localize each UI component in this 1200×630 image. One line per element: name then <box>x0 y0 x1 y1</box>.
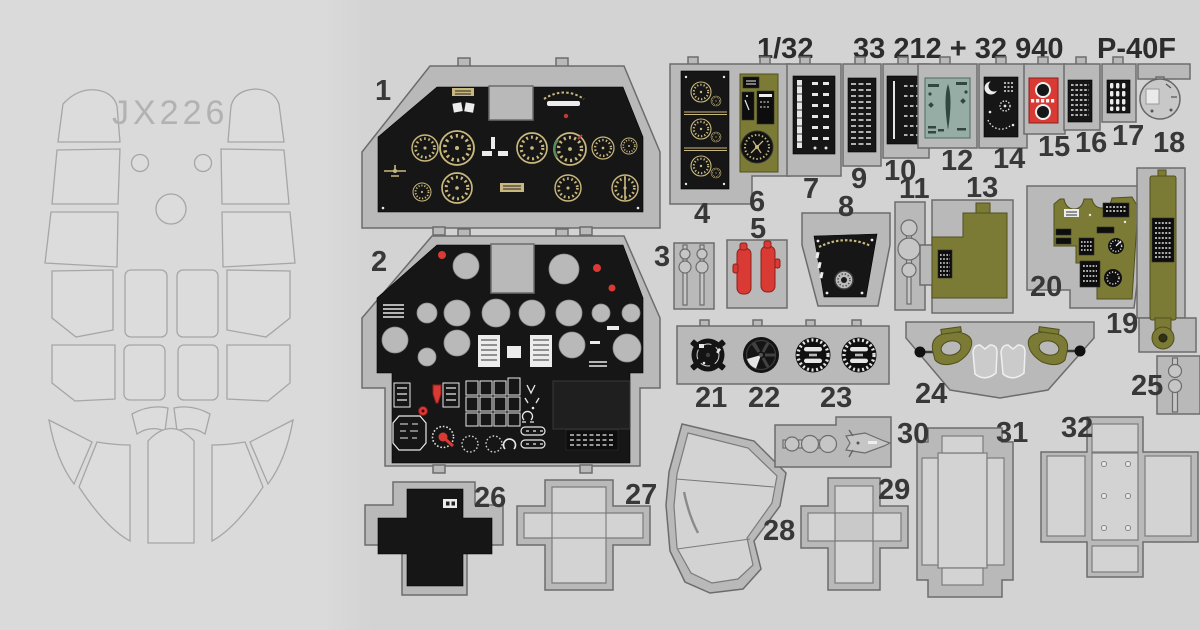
part-label-23: 23 <box>820 382 852 414</box>
part-18-disc <box>1138 64 1190 119</box>
part-14-lighting-panel <box>979 57 1027 148</box>
part-2-main-panel <box>362 229 660 473</box>
part-label-9: 9 <box>851 163 867 195</box>
part-19-seat-strap <box>1137 168 1196 352</box>
part-17-button-grid <box>1102 57 1136 122</box>
part-13-side-panel <box>920 200 1013 313</box>
part-8-compass-housing <box>802 213 890 306</box>
part-label-15: 15 <box>1038 131 1070 163</box>
part-7-switch-panel <box>787 57 841 176</box>
part-1-instrument-panel <box>362 58 660 235</box>
sheet-catalog-numbers: 33 212 + 32 940 <box>853 33 1063 65</box>
part-label-28: 28 <box>763 515 795 547</box>
part-label-26: 26 <box>474 482 506 514</box>
part-label-17: 17 <box>1112 120 1144 152</box>
part-label-13: 13 <box>966 172 998 204</box>
part-label-3: 3 <box>654 241 670 273</box>
part-label-11: 11 <box>899 173 930 205</box>
part-label-16: 16 <box>1075 127 1107 159</box>
part-label-25: 25 <box>1131 370 1163 402</box>
part-3-lever-strips <box>674 243 714 309</box>
mask-sheet: JX226 <box>45 89 295 543</box>
part-6-compass-panel <box>740 74 778 172</box>
part-28-armor-plate <box>666 424 786 593</box>
parts-21-22-23-instrument-faces <box>677 320 889 384</box>
part-16-data-placard <box>1064 57 1100 130</box>
part-label-4: 4 <box>694 198 710 230</box>
part-label-21: 21 <box>695 382 727 414</box>
part-label-32: 32 <box>1061 412 1093 444</box>
part-12-radio-faceplate <box>918 57 977 148</box>
part-15-red-fuel-panel <box>1024 57 1065 134</box>
part-23-face-b <box>842 338 877 373</box>
part-label-20: 20 <box>1030 271 1062 303</box>
photoetch-parts-sheet: JX226 1/32 33 212 + 32 940 P-40F <box>0 0 1200 630</box>
part-label-29: 29 <box>878 474 910 506</box>
part-30-gunsight-lever <box>775 417 891 467</box>
part-label-31: 31 <box>996 417 1028 449</box>
sheet-aircraft-type: P-40F <box>1097 33 1176 65</box>
mask-sheet-code: JX226 <box>112 94 228 132</box>
part-label-18: 18 <box>1153 127 1185 159</box>
part-9-placard-panel <box>843 57 881 166</box>
part-label-22: 22 <box>748 382 780 414</box>
part-label-19: 19 <box>1106 308 1138 340</box>
part-label-27: 27 <box>625 479 657 511</box>
part-label-8: 8 <box>838 191 854 223</box>
part-31-tall-box <box>917 428 1013 597</box>
part-label-2: 2 <box>371 246 387 278</box>
part-21-face <box>690 339 726 372</box>
part-label-30: 30 <box>897 418 929 450</box>
part-22-face <box>743 337 779 373</box>
part-25-small-levers <box>1157 356 1200 414</box>
part-label-24: 24 <box>915 378 947 410</box>
part-label-6: 6 <box>749 186 765 218</box>
part-label-14: 14 <box>993 143 1025 175</box>
part-label-1: 1 <box>375 75 391 107</box>
part-label-7: 7 <box>803 173 819 205</box>
part-5-red-handles <box>727 240 787 308</box>
part-23-face-a <box>796 338 831 373</box>
